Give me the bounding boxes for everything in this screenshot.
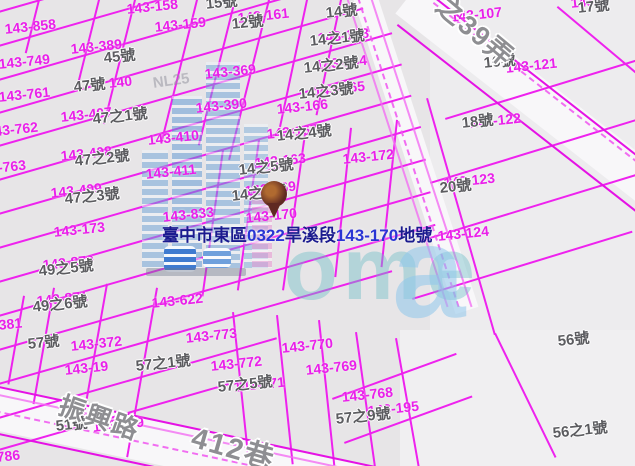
house-number-label: 47之2號: [74, 148, 130, 169]
parcel-number-label: 143-749: [0, 52, 51, 71]
house-number-label: 56之1號: [552, 420, 608, 441]
house-number-label: 57號: [27, 334, 60, 352]
parcel-number-label: 143-410: [147, 128, 200, 147]
parcel-number-fragment: 140: [108, 74, 133, 90]
house-number-label: 57之1號: [135, 353, 191, 374]
house-number-label: 49之5號: [38, 258, 94, 279]
house-number-label: 47之1號: [92, 106, 148, 127]
parcel-number-label: 143-372: [70, 334, 123, 353]
house-number-label: 49之6號: [32, 294, 88, 315]
house-number-label: 14之3號: [298, 81, 354, 102]
parcel-number-label: 143-369: [204, 62, 257, 81]
parcel-number-label: 143-159: [154, 15, 207, 34]
cadastral-map[interactable]: ome a NL25 143-858143-158143-159143-1611…: [0, 0, 635, 466]
road-name-label: 振興路: [56, 392, 144, 444]
house-number-label: 20號: [439, 178, 472, 196]
parcel-number-label: 143-390: [195, 96, 248, 115]
house-number-label: 57之9號: [335, 406, 391, 427]
parcel-number-fragment: 381: [0, 316, 23, 332]
parcel-number-label: 143-622: [151, 291, 204, 310]
parcel-number-label: 143-124: [437, 224, 490, 243]
parcel-number-label: 143-772: [210, 354, 263, 373]
parcel-number-label: 143-858: [4, 17, 57, 36]
house-number-label: 14之4號: [276, 123, 332, 144]
caption-segment: 地號: [398, 226, 432, 245]
parcel-number-label: 143-158: [126, 0, 179, 16]
parcel-number-label: 143-769: [305, 358, 358, 377]
road-name-label: 之39弄: [431, 0, 519, 72]
caption-segment: 臺中市東區: [162, 226, 247, 245]
parcel-number-label: 143-773: [185, 326, 238, 345]
parcel-number-label: 143-761: [0, 85, 51, 104]
house-number-label: 45號: [103, 48, 136, 66]
parcel-number-label: 143-411: [145, 162, 197, 181]
house-number-label: 12號: [231, 14, 264, 32]
house-number-label: 14之1號: [309, 28, 365, 49]
parcel-number-label: 143-763: [0, 158, 27, 177]
house-number-label: 57之5號: [217, 374, 273, 395]
house-number-label: 47之3號: [64, 186, 120, 207]
parcel-number-fragment: 786: [0, 448, 21, 464]
location-pin[interactable]: [261, 181, 289, 219]
house-number-label: 14之5號: [238, 157, 294, 178]
house-number-label: 15號: [205, 0, 238, 12]
pin-tail-icon: [267, 203, 281, 218]
house-number-label: 56號: [557, 331, 590, 349]
parcel-number-label: 143-19: [64, 358, 109, 376]
caption-segment: 旱溪段: [285, 226, 336, 245]
house-number-label: 18號: [461, 113, 494, 131]
parcel-number-label: 143-173: [53, 220, 106, 239]
road-name-label: 412巷: [188, 424, 278, 466]
parcel-address-caption: 臺中市東區0322旱溪段143-170地號: [162, 221, 432, 246]
parcel-number-label: 143-762: [0, 120, 39, 139]
parcel-number-label: 143-172: [342, 147, 395, 166]
caption-segment: 143-170: [336, 226, 398, 245]
parcel-number-label: 143-770: [281, 336, 334, 355]
caption-segment: 0322: [247, 226, 285, 245]
house-number-label: 47號: [73, 77, 106, 95]
house-number-label: 14之2號: [303, 55, 359, 76]
house-number-label: 17號: [577, 0, 610, 16]
house-number-label: 14號: [325, 3, 358, 21]
